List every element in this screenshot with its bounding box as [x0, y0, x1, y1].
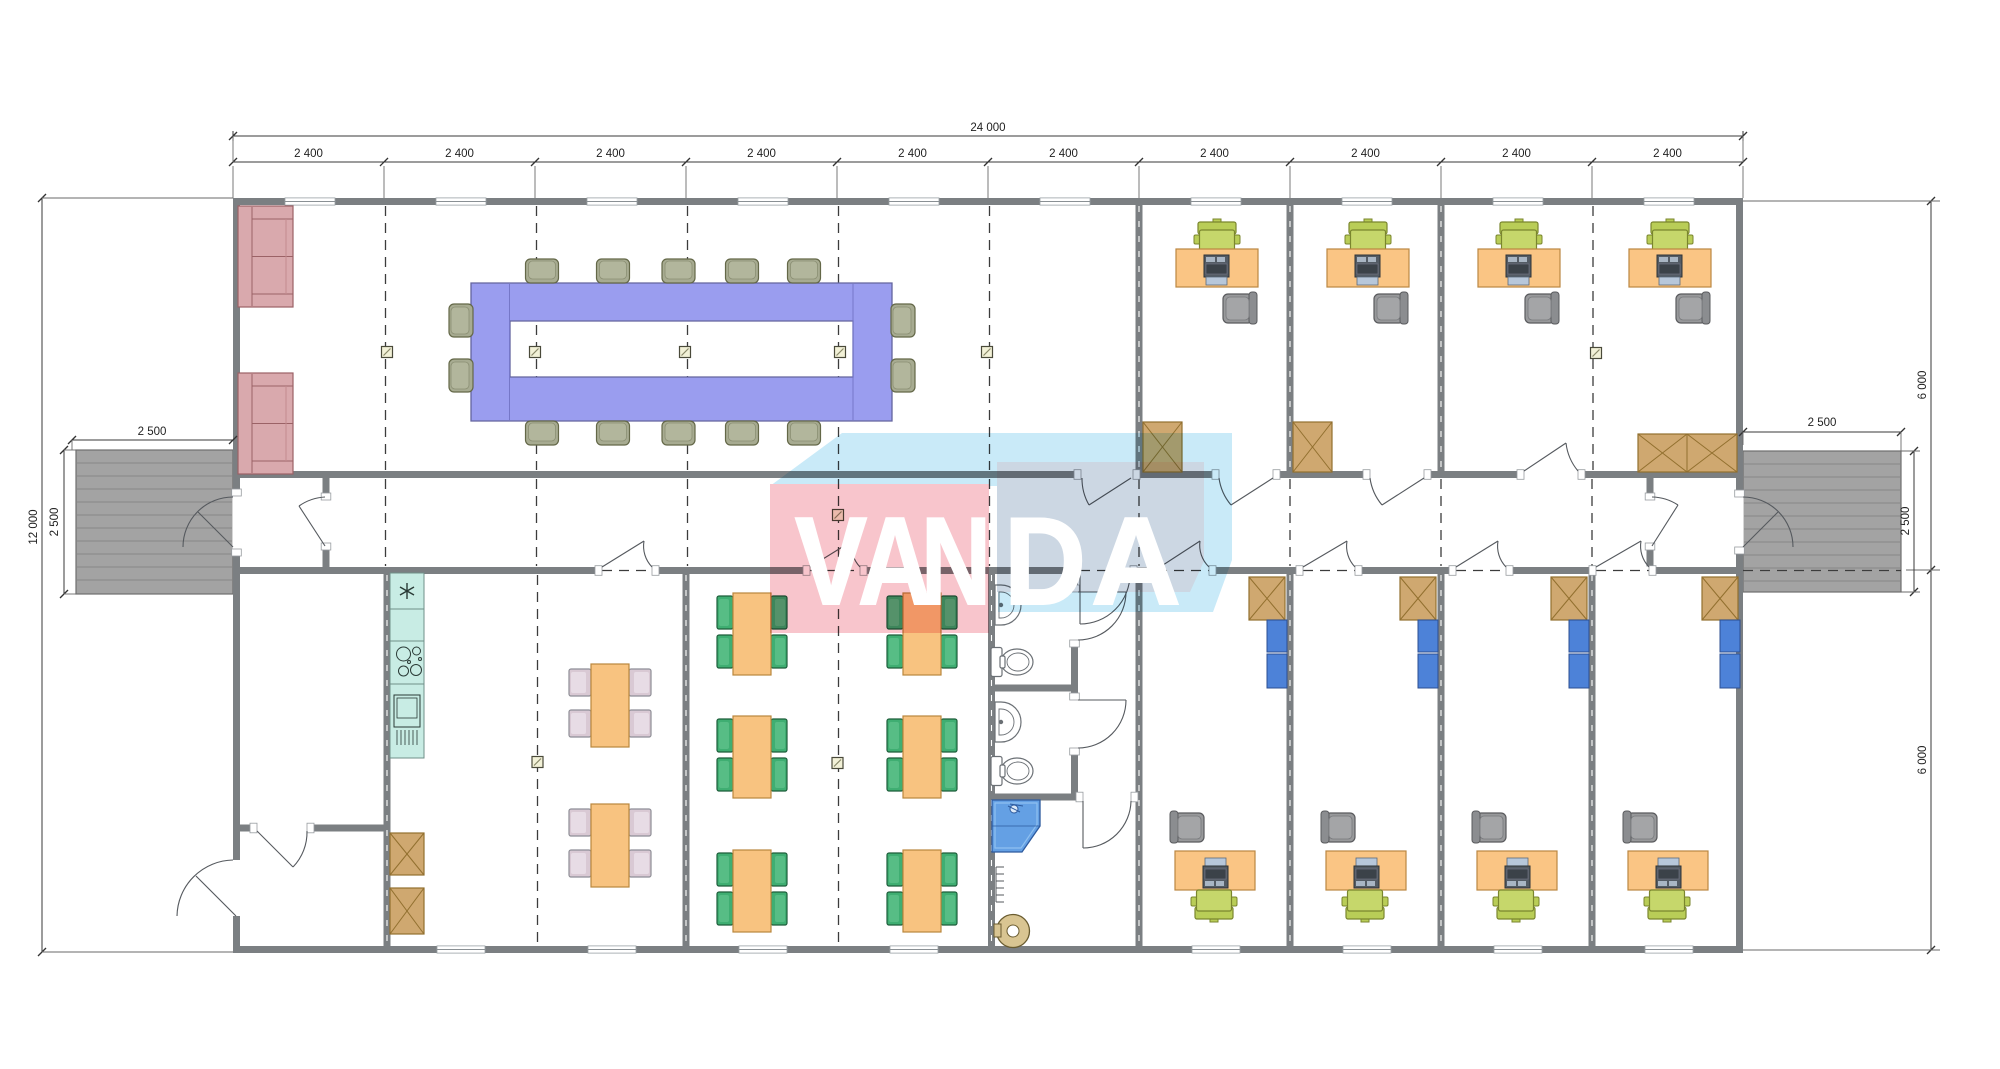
svg-text:2 500: 2 500	[1900, 507, 1912, 536]
svg-text:2 400: 2 400	[1502, 148, 1531, 160]
svg-text:2 500: 2 500	[138, 426, 167, 438]
svg-text:2 400: 2 400	[747, 148, 776, 160]
svg-text:2 400: 2 400	[596, 148, 625, 160]
svg-text:2 400: 2 400	[1200, 148, 1229, 160]
svg-text:2 400: 2 400	[294, 148, 323, 160]
svg-text:24 000: 24 000	[970, 122, 1005, 134]
svg-text:2 500: 2 500	[1808, 417, 1837, 429]
svg-text:6 000: 6 000	[1917, 371, 1929, 400]
svg-text:2 400: 2 400	[445, 148, 474, 160]
svg-text:A: A	[1091, 493, 1181, 631]
svg-text:2 400: 2 400	[1049, 148, 1078, 160]
svg-text:2 400: 2 400	[1351, 148, 1380, 160]
svg-text:N: N	[921, 493, 991, 631]
svg-text:12 000: 12 000	[28, 509, 40, 544]
svg-text:2 400: 2 400	[1653, 148, 1682, 160]
svg-text:2 500: 2 500	[49, 508, 61, 537]
svg-text:6 000: 6 000	[1917, 746, 1929, 775]
svg-text:2 400: 2 400	[898, 148, 927, 160]
svg-text:V: V	[795, 493, 867, 631]
svg-text:D: D	[1004, 493, 1086, 631]
